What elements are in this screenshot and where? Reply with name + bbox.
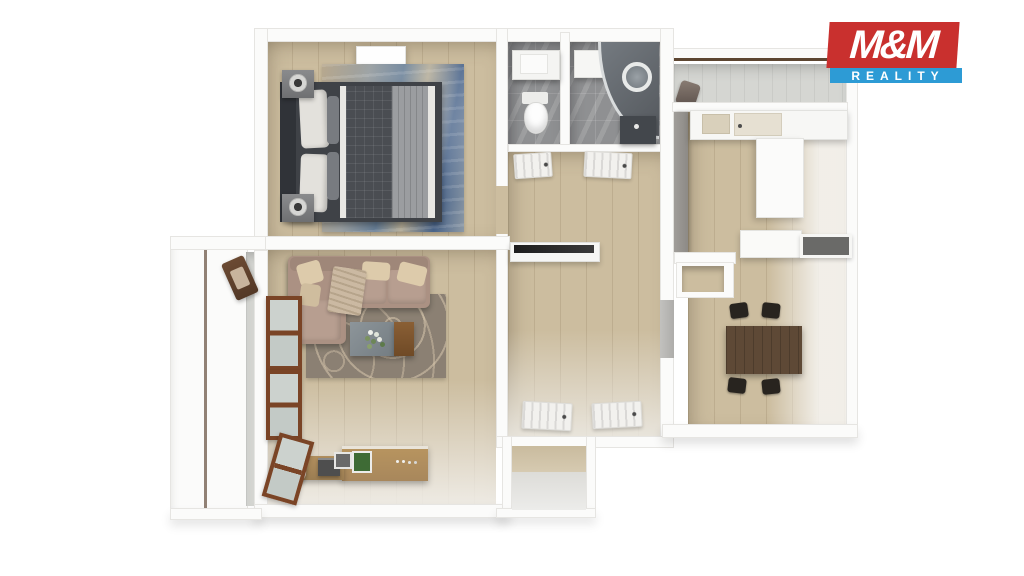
vestibule-wall-right (586, 436, 596, 516)
logo-reality-text: REALITY (851, 69, 944, 83)
table-lamp-bottom (289, 198, 307, 216)
bed-accent-pillow-bottom (327, 152, 339, 200)
bathroom-round-mirror (622, 62, 652, 92)
hallway-floor (508, 150, 662, 438)
vanity-faucet-dot (634, 124, 639, 129)
left-balcony-railing-edge (204, 250, 207, 510)
speaker-box-2 (334, 452, 352, 469)
coffee-table-flowers (368, 330, 373, 335)
louvered-door-bottom-left (521, 401, 572, 432)
bed-runner-right (428, 86, 435, 218)
dining-chair-4 (761, 378, 780, 395)
bed-duvet-quilted (346, 86, 392, 218)
vestibule-back-wall-face (512, 446, 586, 472)
wall-balcony-bottom (170, 508, 262, 520)
wall-hall-right (660, 28, 674, 448)
louvered-door-top-left (513, 152, 553, 180)
louvered-door-top-right (583, 151, 632, 179)
bed-pillow-top (299, 89, 330, 148)
wall-top (254, 28, 672, 42)
dining-chair-1 (729, 302, 749, 319)
kitchen-sink-panel (702, 114, 730, 134)
bedroom-door-opening (496, 186, 508, 234)
louvered-door-bottom-right (591, 401, 642, 430)
bed-blanket-gray (392, 86, 428, 218)
pass-through-niche (800, 234, 852, 258)
dining-door-opening (660, 300, 674, 358)
dining-chair-3 (727, 377, 747, 394)
table-lamp-top (289, 74, 307, 92)
kitchen-nook-inner (682, 266, 724, 292)
top-balcony-railing (672, 58, 848, 61)
living-window-lower (266, 370, 302, 440)
coffee-table-wood (394, 322, 414, 356)
sideboard-knobs (396, 460, 399, 463)
wall-wc-bath-divider (560, 32, 570, 150)
sideboard-picture-frame (352, 451, 372, 473)
floor-plan-canvas: M&M REALITY (0, 0, 1024, 576)
top-balcony-floor (674, 64, 846, 104)
kitchen-faucet-dot (738, 124, 742, 128)
logo-mm-text: M&M (848, 23, 938, 68)
wall-living-bottom (254, 504, 510, 518)
hall-niche-dark-slot (514, 245, 594, 253)
wall-bedroom-left (254, 28, 268, 250)
kitchen-island-counter (740, 230, 802, 258)
mm-reality-logo-mark: M&M (826, 22, 959, 68)
dining-chair-2 (761, 302, 780, 319)
kitchen-tall-cabinet (756, 138, 804, 218)
wall-bedroom-living-divider (254, 236, 510, 250)
sofa-throw-blanket (327, 266, 367, 316)
living-window-upper (266, 296, 302, 370)
bed-accent-pillow-top (327, 96, 339, 144)
wall-balcony-top (170, 236, 266, 250)
wc-light-panel (520, 54, 548, 74)
bathroom-vanity (620, 116, 656, 144)
toilet-bowl (524, 102, 548, 134)
mm-reality-logo-band: REALITY (830, 68, 962, 83)
kitchen-gray-partition (674, 112, 688, 254)
coffee-table-glass (350, 322, 394, 356)
vestibule-floor (512, 472, 586, 510)
dining-table (726, 326, 802, 374)
vestibule-wall-left (502, 436, 512, 516)
wall-right-bottom (662, 424, 858, 438)
